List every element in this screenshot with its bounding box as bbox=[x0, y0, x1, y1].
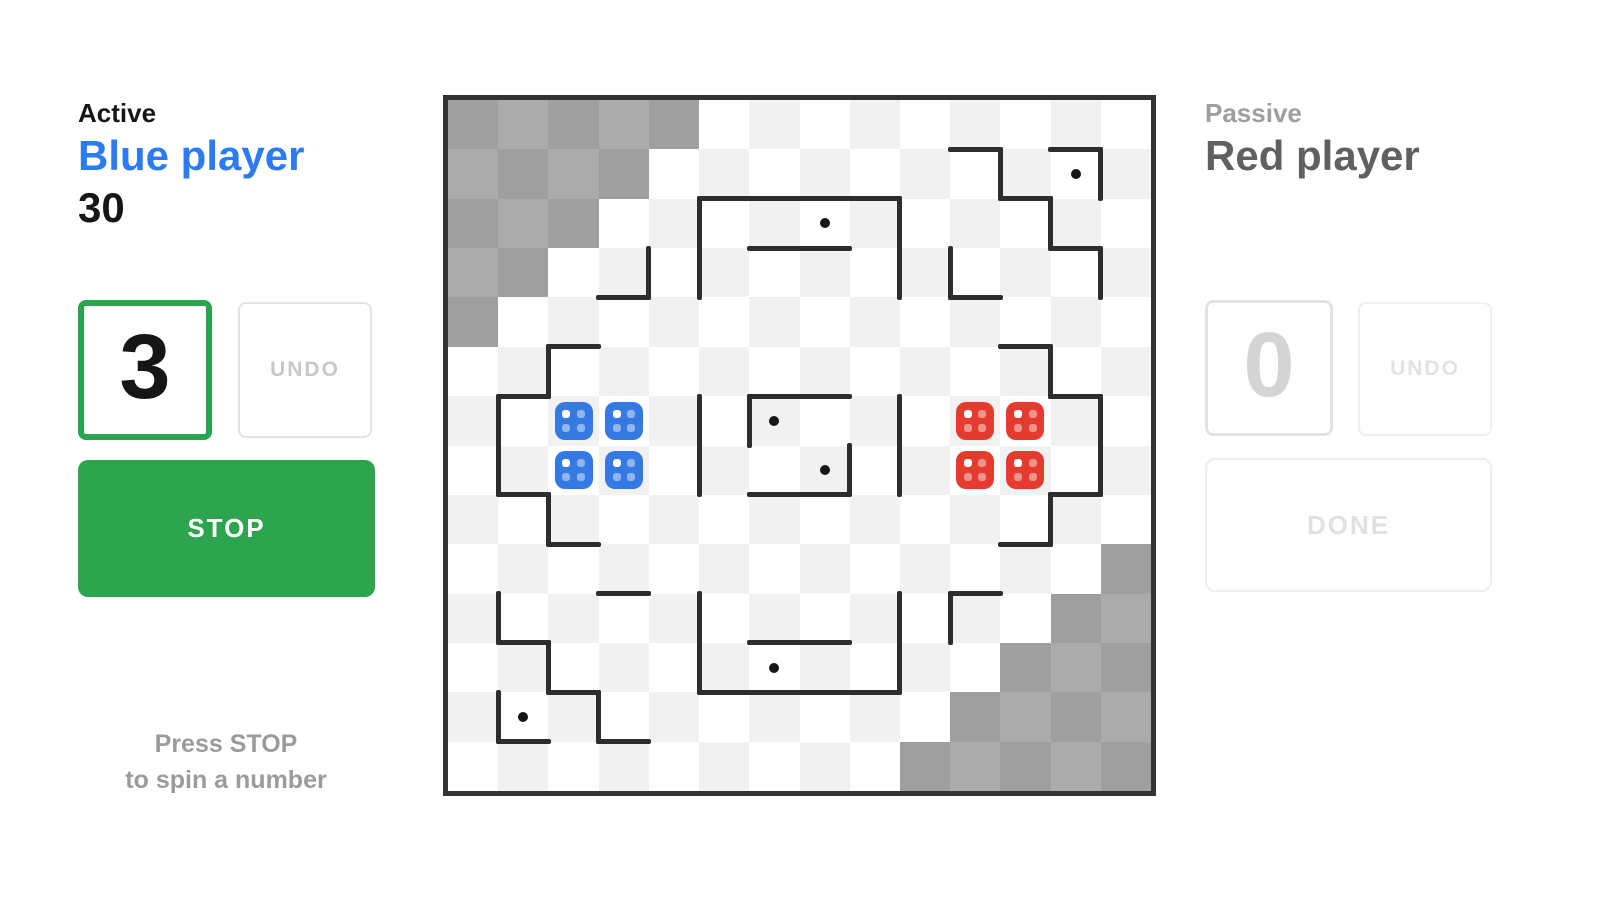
board-cell[interactable] bbox=[649, 297, 700, 347]
board-cell[interactable] bbox=[1101, 594, 1152, 644]
board-cell[interactable] bbox=[950, 594, 1001, 644]
board-cell[interactable] bbox=[749, 297, 800, 347]
wall-segment bbox=[948, 147, 1003, 152]
board-cell[interactable] bbox=[800, 692, 851, 742]
board-cell[interactable] bbox=[649, 347, 700, 397]
board-cell[interactable] bbox=[448, 495, 499, 545]
die-pip bbox=[964, 459, 972, 467]
hint-text: Press STOP to spin a number bbox=[76, 726, 376, 798]
wall-segment bbox=[1048, 394, 1103, 399]
board-cell[interactable] bbox=[950, 544, 1001, 594]
board-cell[interactable] bbox=[498, 446, 549, 496]
room-dot bbox=[820, 465, 830, 475]
wall-segment bbox=[948, 295, 1003, 300]
board-cell[interactable] bbox=[749, 594, 800, 644]
board-cell[interactable] bbox=[548, 544, 599, 594]
board-cell[interactable] bbox=[950, 347, 1001, 397]
wall-segment bbox=[747, 394, 752, 448]
spin-number-box-active: 3 bbox=[78, 300, 212, 440]
die-pip bbox=[1014, 459, 1022, 467]
game-board[interactable] bbox=[443, 95, 1156, 796]
wall-segment bbox=[747, 640, 852, 645]
board-cell[interactable] bbox=[749, 495, 800, 545]
wall-segment bbox=[747, 492, 852, 497]
board-cell[interactable] bbox=[950, 100, 1001, 150]
board-cell[interactable] bbox=[749, 692, 800, 742]
wall-segment bbox=[998, 147, 1003, 201]
board-cell[interactable] bbox=[850, 742, 901, 792]
board-cell[interactable] bbox=[649, 495, 700, 545]
wall-segment bbox=[998, 344, 1053, 349]
board-cell[interactable] bbox=[448, 742, 499, 792]
wall-segment bbox=[546, 542, 601, 547]
die-pip bbox=[1014, 424, 1022, 432]
stop-button[interactable]: STOP bbox=[78, 460, 375, 597]
board-cell[interactable] bbox=[448, 692, 499, 742]
board-cell[interactable] bbox=[498, 742, 549, 792]
board-cell[interactable] bbox=[699, 248, 750, 298]
board-cell[interactable] bbox=[649, 594, 700, 644]
board-cell[interactable] bbox=[749, 100, 800, 150]
board-cell[interactable] bbox=[699, 347, 750, 397]
board-cell[interactable] bbox=[900, 692, 951, 742]
board-cell[interactable] bbox=[900, 248, 951, 298]
board-cell[interactable] bbox=[1000, 297, 1051, 347]
board-cell[interactable] bbox=[699, 692, 750, 742]
board-cell[interactable] bbox=[1051, 347, 1102, 397]
wall-segment bbox=[546, 690, 601, 695]
red-die bbox=[956, 402, 994, 440]
board-cell[interactable] bbox=[950, 742, 1001, 792]
board-cell[interactable] bbox=[800, 396, 851, 446]
spin-number-value: 3 bbox=[119, 321, 170, 419]
board-cell[interactable] bbox=[850, 297, 901, 347]
board-cell[interactable] bbox=[800, 149, 851, 199]
wall-segment bbox=[1098, 394, 1103, 498]
board-cell[interactable] bbox=[1051, 297, 1102, 347]
board-cell[interactable] bbox=[498, 643, 549, 693]
board-cell[interactable] bbox=[548, 742, 599, 792]
board-cell[interactable] bbox=[850, 396, 901, 446]
board-cell[interactable] bbox=[548, 248, 599, 298]
die-pip bbox=[577, 459, 585, 467]
board-cell[interactable] bbox=[649, 396, 700, 446]
board-cell[interactable] bbox=[1000, 199, 1051, 249]
board-cell[interactable] bbox=[699, 446, 750, 496]
wall-segment bbox=[596, 591, 651, 596]
board-cell[interactable] bbox=[1051, 100, 1102, 150]
red-die bbox=[956, 451, 994, 489]
wall-segment bbox=[1048, 492, 1053, 546]
board-cell[interactable] bbox=[1101, 347, 1152, 397]
board-cell[interactable] bbox=[850, 199, 901, 249]
board-cell[interactable] bbox=[649, 544, 700, 594]
board-cell[interactable] bbox=[448, 446, 499, 496]
board-cell[interactable] bbox=[1101, 100, 1152, 150]
board-cell[interactable] bbox=[448, 594, 499, 644]
board-cell[interactable] bbox=[548, 199, 599, 249]
board-cell[interactable] bbox=[498, 594, 549, 644]
board-cell[interactable] bbox=[649, 742, 700, 792]
board-cell[interactable] bbox=[1000, 742, 1051, 792]
board-cell[interactable] bbox=[498, 347, 549, 397]
wall-segment bbox=[496, 640, 551, 645]
die-pip bbox=[613, 424, 621, 432]
board-cell[interactable] bbox=[1051, 396, 1102, 446]
board-cell[interactable] bbox=[548, 149, 599, 199]
board-cell[interactable] bbox=[950, 495, 1001, 545]
board-cell[interactable] bbox=[699, 643, 750, 693]
board-cell[interactable] bbox=[900, 495, 951, 545]
wall-segment bbox=[596, 739, 651, 744]
die-pip bbox=[1029, 473, 1037, 481]
board-cell[interactable] bbox=[599, 495, 650, 545]
wall-segment bbox=[496, 394, 551, 399]
board-cell[interactable] bbox=[699, 199, 750, 249]
wall-segment bbox=[697, 394, 702, 498]
die-pip bbox=[964, 410, 972, 418]
board-cell[interactable] bbox=[498, 100, 549, 150]
wall-segment bbox=[697, 591, 702, 695]
die-pip bbox=[562, 424, 570, 432]
board-cell[interactable] bbox=[548, 100, 599, 150]
wall-segment bbox=[948, 246, 953, 300]
board-cell[interactable] bbox=[599, 692, 650, 742]
board-cell[interactable] bbox=[498, 248, 549, 298]
wall-segment bbox=[897, 196, 902, 300]
board-cell[interactable] bbox=[850, 495, 901, 545]
board-cell[interactable] bbox=[900, 643, 951, 693]
board-cell[interactable] bbox=[498, 199, 549, 249]
die-pip bbox=[562, 473, 570, 481]
board-cell[interactable] bbox=[1051, 544, 1102, 594]
board-cell[interactable] bbox=[1000, 544, 1051, 594]
board-cell[interactable] bbox=[1051, 742, 1102, 792]
board-cell[interactable] bbox=[900, 742, 951, 792]
board-cell[interactable] bbox=[699, 742, 750, 792]
board-cell[interactable] bbox=[749, 742, 800, 792]
board-cell[interactable] bbox=[448, 248, 499, 298]
board-cell[interactable] bbox=[599, 248, 650, 298]
board-cell[interactable] bbox=[699, 594, 750, 644]
board-cell[interactable] bbox=[498, 544, 549, 594]
board-cell[interactable] bbox=[850, 149, 901, 199]
red-die bbox=[1006, 402, 1044, 440]
board-cell[interactable] bbox=[1101, 248, 1152, 298]
board-cell[interactable] bbox=[448, 544, 499, 594]
die-pip bbox=[577, 473, 585, 481]
board-cell[interactable] bbox=[699, 495, 750, 545]
board-cell[interactable] bbox=[850, 347, 901, 397]
board-cell[interactable] bbox=[649, 643, 700, 693]
wall-segment bbox=[1048, 147, 1103, 152]
board-cell[interactable] bbox=[649, 248, 700, 298]
board-cell[interactable] bbox=[1101, 297, 1152, 347]
die-pip bbox=[613, 459, 621, 467]
board-cell[interactable] bbox=[548, 643, 599, 693]
active-player-name: Blue player bbox=[78, 132, 304, 180]
board-cell[interactable] bbox=[548, 692, 599, 742]
die-pip bbox=[1029, 424, 1037, 432]
wall-segment bbox=[1048, 246, 1103, 251]
board-cell[interactable] bbox=[1101, 544, 1152, 594]
board-cell[interactable] bbox=[950, 297, 1001, 347]
die-pip bbox=[562, 459, 570, 467]
wall-segment bbox=[998, 542, 1053, 547]
board-cell[interactable] bbox=[800, 297, 851, 347]
board-cell[interactable] bbox=[1101, 149, 1152, 199]
board-cell[interactable] bbox=[900, 100, 951, 150]
board-cell[interactable] bbox=[1000, 643, 1051, 693]
wall-segment bbox=[496, 739, 551, 744]
board-cell[interactable] bbox=[1101, 199, 1152, 249]
board-cell[interactable] bbox=[900, 446, 951, 496]
blue-die bbox=[555, 451, 593, 489]
board-cell[interactable] bbox=[1051, 495, 1102, 545]
wall-segment bbox=[1048, 196, 1053, 250]
spin-number-value-passive: 0 bbox=[1243, 319, 1294, 417]
board-cell[interactable] bbox=[1000, 149, 1051, 199]
board-cell[interactable] bbox=[498, 149, 549, 199]
board-cell[interactable] bbox=[699, 149, 750, 199]
board-cell[interactable] bbox=[448, 199, 499, 249]
board-cell[interactable] bbox=[699, 297, 750, 347]
wall-segment bbox=[697, 196, 903, 201]
blue-die bbox=[605, 451, 643, 489]
board-cell[interactable] bbox=[1101, 495, 1152, 545]
hint-line-2: to spin a number bbox=[76, 762, 376, 798]
board-cell[interactable] bbox=[1051, 446, 1102, 496]
board-cell[interactable] bbox=[448, 297, 499, 347]
board-cell[interactable] bbox=[548, 594, 599, 644]
board-cell[interactable] bbox=[749, 199, 800, 249]
die-pip bbox=[978, 424, 986, 432]
board-cell[interactable] bbox=[850, 100, 901, 150]
board-cell[interactable] bbox=[548, 347, 599, 397]
board-cell[interactable] bbox=[749, 149, 800, 199]
game-screen: { "left_panel": { "status_label": "Activ… bbox=[0, 0, 1599, 900]
board-cell[interactable] bbox=[699, 396, 750, 446]
board-cell[interactable] bbox=[1051, 692, 1102, 742]
board-cell[interactable] bbox=[498, 297, 549, 347]
board-cell[interactable] bbox=[548, 495, 599, 545]
board-cell[interactable] bbox=[1101, 396, 1152, 446]
passive-player-name: Red player bbox=[1205, 132, 1420, 180]
board-cell[interactable] bbox=[950, 643, 1001, 693]
board-cell[interactable] bbox=[599, 100, 650, 150]
board-cell[interactable] bbox=[448, 396, 499, 446]
board-cell[interactable] bbox=[900, 544, 951, 594]
die-pip bbox=[978, 410, 986, 418]
board-cell[interactable] bbox=[649, 199, 700, 249]
wall-segment bbox=[1098, 246, 1103, 300]
active-status-label: Active bbox=[78, 98, 156, 129]
board-cell[interactable] bbox=[1000, 347, 1051, 397]
board-cell[interactable] bbox=[599, 199, 650, 249]
wall-segment bbox=[747, 246, 852, 251]
board-cell[interactable] bbox=[599, 149, 650, 199]
board-cell[interactable] bbox=[599, 347, 650, 397]
board-cell[interactable] bbox=[599, 297, 650, 347]
board-cell[interactable] bbox=[1051, 248, 1102, 298]
spin-number-box-passive: 0 bbox=[1205, 300, 1333, 436]
wall-segment bbox=[1098, 147, 1103, 201]
board-cell[interactable] bbox=[1051, 594, 1102, 644]
wall-segment bbox=[496, 492, 551, 497]
board-cell[interactable] bbox=[900, 149, 951, 199]
wall-segment bbox=[596, 690, 601, 744]
board-cell[interactable] bbox=[599, 544, 650, 594]
board-cell[interactable] bbox=[699, 544, 750, 594]
board-cell[interactable] bbox=[1051, 643, 1102, 693]
board-cell[interactable] bbox=[548, 297, 599, 347]
wall-segment bbox=[496, 591, 501, 645]
die-pip bbox=[964, 424, 972, 432]
board-cell[interactable] bbox=[850, 594, 901, 644]
board-cell[interactable] bbox=[749, 544, 800, 594]
room-dot bbox=[1071, 169, 1081, 179]
board-cell[interactable] bbox=[1101, 742, 1152, 792]
die-pip bbox=[1029, 459, 1037, 467]
wall-segment bbox=[646, 246, 651, 300]
board-cell[interactable] bbox=[1000, 100, 1051, 150]
board-cell[interactable] bbox=[800, 643, 851, 693]
board-cell[interactable] bbox=[448, 149, 499, 199]
board-cell[interactable] bbox=[1000, 594, 1051, 644]
board-cell[interactable] bbox=[800, 495, 851, 545]
board-cell[interactable] bbox=[649, 149, 700, 199]
die-pip bbox=[562, 410, 570, 418]
blue-die bbox=[605, 402, 643, 440]
wall-segment bbox=[1048, 344, 1053, 398]
board-cell[interactable] bbox=[800, 742, 851, 792]
passive-status-label: Passive bbox=[1205, 98, 1302, 129]
board-cell[interactable] bbox=[448, 347, 499, 397]
room-dot bbox=[820, 218, 830, 228]
board-cell[interactable] bbox=[749, 446, 800, 496]
board-cell[interactable] bbox=[649, 100, 700, 150]
board-cell[interactable] bbox=[1101, 643, 1152, 693]
board-cell[interactable] bbox=[1000, 692, 1051, 742]
wall-segment bbox=[546, 640, 551, 694]
die-pip bbox=[1029, 410, 1037, 418]
wall-segment bbox=[948, 591, 953, 645]
board-cell[interactable] bbox=[599, 742, 650, 792]
board-cell[interactable] bbox=[900, 199, 951, 249]
board-cell[interactable] bbox=[900, 347, 951, 397]
board-cell[interactable] bbox=[749, 248, 800, 298]
board-cell[interactable] bbox=[800, 248, 851, 298]
board-cell[interactable] bbox=[900, 594, 951, 644]
board-cell[interactable] bbox=[1101, 692, 1152, 742]
die-pip bbox=[627, 424, 635, 432]
wall-segment bbox=[948, 591, 1003, 596]
board-cell[interactable] bbox=[850, 643, 901, 693]
done-button[interactable]: DONE bbox=[1205, 458, 1492, 592]
board-cell[interactable] bbox=[850, 544, 901, 594]
board-cell[interactable] bbox=[498, 396, 549, 446]
board-cell[interactable] bbox=[950, 199, 1001, 249]
die-pip bbox=[577, 410, 585, 418]
board-cell[interactable] bbox=[800, 347, 851, 397]
board-cell[interactable] bbox=[448, 643, 499, 693]
board-cell[interactable] bbox=[599, 594, 650, 644]
die-pip bbox=[613, 410, 621, 418]
wall-segment bbox=[596, 295, 651, 300]
die-pip bbox=[1014, 410, 1022, 418]
board-cell[interactable] bbox=[850, 446, 901, 496]
die-pip bbox=[577, 424, 585, 432]
wall-segment bbox=[747, 394, 852, 399]
board-cell[interactable] bbox=[1000, 495, 1051, 545]
board-cell[interactable] bbox=[800, 594, 851, 644]
board-cell[interactable] bbox=[1000, 248, 1051, 298]
wall-segment bbox=[697, 196, 702, 300]
board-cell[interactable] bbox=[448, 100, 499, 150]
board-cell[interactable] bbox=[900, 396, 951, 446]
board-cell[interactable] bbox=[950, 248, 1001, 298]
wall-segment bbox=[546, 492, 551, 546]
board-cell[interactable] bbox=[950, 692, 1001, 742]
wall-segment bbox=[496, 394, 501, 498]
hint-line-1: Press STOP bbox=[76, 726, 376, 762]
wall-segment bbox=[546, 344, 601, 349]
board-cell[interactable] bbox=[1101, 446, 1152, 496]
active-player-score: 30 bbox=[78, 184, 125, 232]
wall-segment bbox=[897, 394, 902, 498]
room-dot bbox=[769, 663, 779, 673]
board-cell[interactable] bbox=[699, 100, 750, 150]
board-cell[interactable] bbox=[800, 544, 851, 594]
board-cell[interactable] bbox=[850, 692, 901, 742]
wall-segment bbox=[998, 196, 1053, 201]
board-cell[interactable] bbox=[850, 248, 901, 298]
wall-segment bbox=[847, 443, 852, 497]
board-cell[interactable] bbox=[800, 100, 851, 150]
blue-die bbox=[555, 402, 593, 440]
die-pip bbox=[1014, 473, 1022, 481]
board-cell[interactable] bbox=[900, 297, 951, 347]
wall-segment bbox=[546, 344, 551, 398]
undo-button-active[interactable]: UNDO bbox=[238, 302, 372, 438]
red-die bbox=[1006, 451, 1044, 489]
die-pip bbox=[627, 459, 635, 467]
board-cell[interactable] bbox=[1051, 199, 1102, 249]
undo-button-passive[interactable]: UNDO bbox=[1358, 302, 1492, 436]
wall-segment bbox=[697, 690, 903, 695]
die-pip bbox=[613, 473, 621, 481]
die-pip bbox=[978, 473, 986, 481]
board-cell[interactable] bbox=[498, 495, 549, 545]
board-cell[interactable] bbox=[649, 446, 700, 496]
die-pip bbox=[627, 473, 635, 481]
board-cell[interactable] bbox=[649, 692, 700, 742]
wall-segment bbox=[1048, 492, 1103, 497]
die-pip bbox=[964, 473, 972, 481]
wall-segment bbox=[897, 591, 902, 695]
board-cell[interactable] bbox=[749, 347, 800, 397]
die-pip bbox=[978, 459, 986, 467]
board-cell[interactable] bbox=[950, 149, 1001, 199]
die-pip bbox=[627, 410, 635, 418]
wall-segment bbox=[496, 690, 501, 744]
board-cell[interactable] bbox=[599, 643, 650, 693]
